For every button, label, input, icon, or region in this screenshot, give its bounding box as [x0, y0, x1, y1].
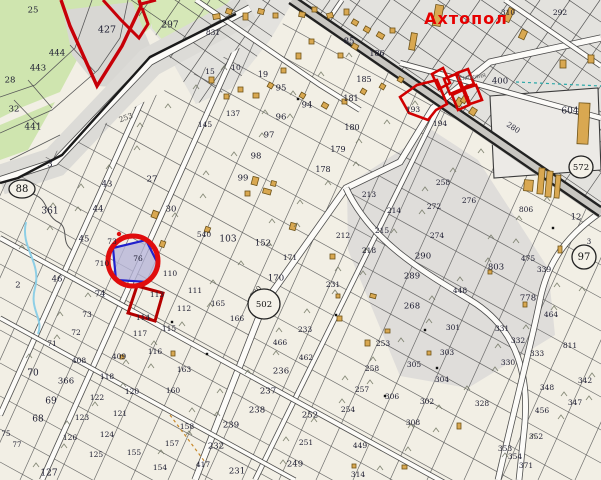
parcel-number-label: 811: [563, 341, 577, 350]
building: [330, 254, 335, 259]
parcel-number-label: 258: [365, 364, 380, 373]
parcel-number-label: 409: [112, 352, 127, 361]
map-viewport[interactable]: 2542729744444328324412533361283110151995…: [0, 0, 601, 480]
survey-point: [206, 353, 208, 355]
building: [337, 316, 342, 321]
parcel-number-label: 778: [520, 294, 536, 304]
parcel-number-label: 400: [492, 77, 508, 87]
red-point-marker: [117, 232, 121, 236]
parcel-number-label: 806: [519, 205, 534, 214]
parcel-number-label: 239: [223, 421, 239, 431]
parcel-number-label: 449: [353, 441, 368, 450]
building: [299, 12, 306, 18]
parcel-number-label: 462: [299, 353, 314, 362]
parcel-number-label: 97: [264, 131, 275, 141]
survey-point: [335, 314, 337, 316]
parcel-number-label: 165: [211, 299, 226, 308]
parcel-number-label: 252: [302, 411, 318, 421]
building: [352, 464, 356, 468]
survey-point: [552, 227, 554, 229]
parcel-number-label: 333: [530, 349, 545, 358]
parcel-number-label: 290: [415, 252, 431, 262]
parcel-number-label: 178: [315, 165, 330, 174]
parcel-number-label: 185: [356, 75, 371, 84]
parcel-number-label: 120: [125, 387, 140, 396]
svg-text:88: 88: [16, 184, 29, 195]
parcel-number-label: 236: [273, 367, 289, 377]
parcel-number-label: 94: [302, 101, 313, 111]
parcel-number-label: 408: [72, 356, 87, 365]
parcel-number-label: 339: [537, 265, 552, 274]
parcel-number-label: 466: [273, 338, 288, 347]
parcel-number-label: 254: [341, 405, 356, 414]
parcel-number-label: 45: [79, 235, 90, 245]
parcel-number-label: 332: [511, 336, 526, 345]
parcel-number-label: 354: [508, 452, 523, 461]
parcel-number-label: 99: [238, 174, 249, 184]
parcel-number-label: 540: [197, 230, 212, 239]
building: [524, 180, 534, 192]
parcel-number-label: 268: [404, 302, 420, 312]
building: [336, 294, 340, 298]
parcel-number-label: 171: [283, 253, 297, 262]
parcel-number-label: 123: [75, 413, 90, 422]
building: [560, 60, 566, 68]
parcel-number-label: 46: [52, 275, 63, 285]
parcel-number-label: 347: [568, 398, 583, 407]
parcel-number-label: 27: [147, 175, 158, 185]
building: [273, 13, 278, 18]
parcel-number-label: 70: [27, 369, 39, 379]
parcel-number-label: 604: [561, 107, 578, 117]
building: [365, 340, 370, 346]
svg-text:572: 572: [573, 163, 589, 173]
building: [270, 180, 276, 186]
parcel-number-label: 3: [587, 238, 591, 246]
parcel-number-label: 330: [501, 358, 516, 367]
parcel-number-label: 328: [475, 399, 490, 408]
building: [558, 246, 562, 253]
parcel-number-label: 215: [375, 226, 390, 235]
parcel-number-label: 43: [102, 180, 113, 190]
parcel-number-label: 117: [133, 329, 148, 338]
parcel-number-label: 251: [299, 438, 313, 447]
svg-text:502: 502: [256, 300, 272, 310]
parcel-number-label: 233: [298, 325, 313, 334]
parcel-number-label: 111: [188, 286, 202, 295]
parcel-number-label: 73: [82, 310, 92, 319]
building: [245, 191, 250, 196]
parcel-number-label: 69: [45, 397, 57, 407]
building: [402, 465, 407, 469]
parcel-number-label: 289: [404, 272, 420, 282]
parcel-number-label: 427: [98, 25, 116, 36]
parcel-number-label: 331: [495, 324, 509, 333]
parcel-number-label: 212: [336, 231, 351, 240]
parcel-number-label: 44: [93, 205, 104, 215]
parcel-number-label: 28: [5, 76, 16, 86]
parcel-number-label: 231: [326, 280, 340, 289]
parcel-number-label: 305: [407, 360, 422, 369]
parcel-number-label: 95: [276, 84, 287, 94]
parcel-number-label: 118: [100, 372, 115, 381]
parcel-number-label: 114: [136, 313, 151, 322]
parcel-number-label: 181: [343, 94, 358, 103]
parcel-number-label: 115: [162, 324, 177, 333]
parcel-number-label: 154: [153, 463, 168, 472]
parcel-number-label: 308: [406, 418, 421, 427]
parcel-number-label: 231: [229, 467, 245, 477]
parcel-number-label: 258: [436, 178, 451, 187]
parcel-number-label: 475: [521, 254, 536, 263]
parcel-number-label: 249: [287, 460, 303, 470]
parcel-number-label: 710: [95, 259, 110, 268]
parcel-number-label: 314: [351, 470, 366, 479]
parcel-number-label: 32: [9, 105, 20, 115]
parcel-number-label: 297: [161, 21, 178, 31]
parcel-number-label: 417: [196, 460, 211, 469]
road-badge: 502: [248, 289, 280, 319]
building: [238, 87, 243, 92]
parcel-number-label: 803: [488, 263, 504, 273]
parcel-number-label: 180: [344, 123, 359, 132]
parcel-number-label: 456: [535, 406, 550, 415]
town-name-label: Ахтопол: [424, 9, 508, 28]
parcel-number-label: 170: [268, 274, 284, 284]
parcel-number-label: 179: [330, 145, 345, 154]
parcel-number-label: 443: [30, 64, 46, 74]
building: [171, 351, 175, 356]
parcel-number-label: 306: [385, 392, 400, 401]
survey-point: [171, 321, 173, 323]
parcel-number-label: 112: [177, 304, 192, 313]
building: [312, 7, 317, 12]
parcel-number-label: 85: [344, 37, 355, 47]
parcel-number-label: 10: [231, 63, 241, 72]
parcel-number-label: 68: [32, 415, 44, 425]
parcel-number-label: 342: [578, 376, 593, 385]
parcel-number-label: 213: [362, 190, 377, 199]
parcel-number-label: 122: [90, 393, 105, 402]
parcel-number-label: 193: [406, 105, 421, 114]
parcel-number-label: 302: [420, 397, 435, 406]
parcel-number-label: 237: [260, 387, 276, 397]
parcel-number-label: 116: [148, 347, 163, 356]
parcel-number-label: 19: [258, 70, 268, 79]
parcel-number-label: 292: [553, 8, 568, 17]
parcel-number-label: 74: [95, 290, 106, 300]
parcel-number-label: 76: [133, 254, 143, 263]
parcel-number-label: 194: [433, 119, 448, 128]
parcel-number-label: 124: [100, 430, 115, 439]
parcel-number-label: 444: [49, 49, 65, 59]
building: [427, 351, 431, 355]
parcel-number-label: 110: [163, 269, 178, 278]
parcel-number-label: 348: [540, 383, 555, 392]
parcel-number-label: 276: [462, 196, 477, 205]
parcel-number-label: 352: [529, 432, 544, 441]
building: [257, 8, 264, 14]
parcel-number-label: 157: [165, 439, 180, 448]
building: [309, 39, 314, 44]
building: [390, 28, 395, 33]
parcel-number-label: 152: [255, 239, 271, 249]
parcel-number-label: 272: [427, 202, 442, 211]
building: [457, 423, 461, 429]
parcel-number-label: 301: [446, 323, 460, 332]
building: [243, 13, 248, 20]
survey-point: [436, 367, 438, 369]
svg-text:97: 97: [578, 252, 591, 263]
parcel-number-label: 73: [107, 237, 117, 246]
parcel-number-label: 72: [71, 328, 81, 337]
building: [281, 68, 286, 73]
parcel-number-label: 441: [24, 123, 41, 133]
parcel-number-label: 98: [251, 152, 262, 162]
parcel-number-label: 831: [206, 28, 220, 37]
parcel-number-label: 25: [28, 6, 39, 16]
building: [326, 12, 333, 18]
building: [296, 53, 301, 59]
parcel-number-label: 2: [15, 281, 20, 291]
building: [385, 329, 390, 333]
parcel-number-label: 361: [41, 207, 58, 217]
parcel-number-label: 71: [47, 339, 57, 348]
parcel-number-label: 304: [435, 375, 450, 384]
building: [213, 13, 221, 19]
parcel-number-label: 160: [166, 386, 181, 395]
parcel-number-label: 163: [177, 365, 192, 374]
parcel-number-label: 257: [355, 385, 370, 394]
parcel-number-label: 125: [89, 450, 104, 459]
parcel-number-label: 448: [453, 286, 468, 295]
parcel-number-label: 121: [113, 409, 127, 418]
parcel-number-label: 12: [571, 213, 582, 223]
parcel-number-label: 126: [63, 433, 78, 442]
survey-point: [424, 329, 426, 331]
parcel-number-label: 75: [2, 430, 11, 438]
building: [289, 222, 297, 230]
parcel-number-label: 253: [376, 339, 391, 348]
parcel-number-label: 15: [205, 67, 215, 76]
parcel-number-label: 103: [219, 235, 236, 245]
parcel-number-label: 232: [208, 442, 224, 452]
parcel-number-label: 137: [226, 109, 241, 118]
road-badge: 88: [9, 180, 35, 198]
parcel-number-label: 214: [387, 206, 402, 215]
parcel-number-label: 155: [127, 448, 142, 457]
building: [577, 103, 590, 145]
parcel-number-label: 186: [369, 49, 384, 58]
road-badge: 572: [569, 156, 593, 178]
parcel-number-label: 238: [249, 406, 265, 416]
building: [588, 55, 594, 63]
building: [209, 77, 214, 83]
parcel-number-label: 274: [430, 231, 445, 240]
parcel-number-label: 366: [58, 377, 74, 387]
parcel-number-label: 158: [180, 422, 195, 431]
parcel-number-label: 113: [150, 290, 165, 299]
building: [224, 94, 229, 99]
building: [338, 53, 343, 58]
parcel-number-label: 127: [40, 469, 57, 479]
parcel-number-label: 96: [276, 113, 287, 123]
building: [344, 9, 349, 15]
parcel-number-label: 303: [440, 348, 455, 357]
parcel-number-label: 218: [362, 246, 377, 255]
parcel-number-label: 77: [13, 441, 22, 449]
parcel-number-label: 3: [47, 160, 52, 170]
survey-point: [297, 98, 299, 100]
parcel-number-label: 145: [198, 120, 213, 129]
parcel-number-label: 371: [519, 461, 533, 470]
parcel-number-label: 464: [544, 310, 559, 319]
parcel-number-label: 166: [230, 314, 245, 323]
building: [253, 93, 259, 98]
road-badge: 97: [572, 245, 596, 269]
cadastral-map-canvas[interactable]: 2542729744444328324412533361283110151995…: [0, 0, 601, 480]
parcel-number-label: 30: [166, 205, 177, 215]
